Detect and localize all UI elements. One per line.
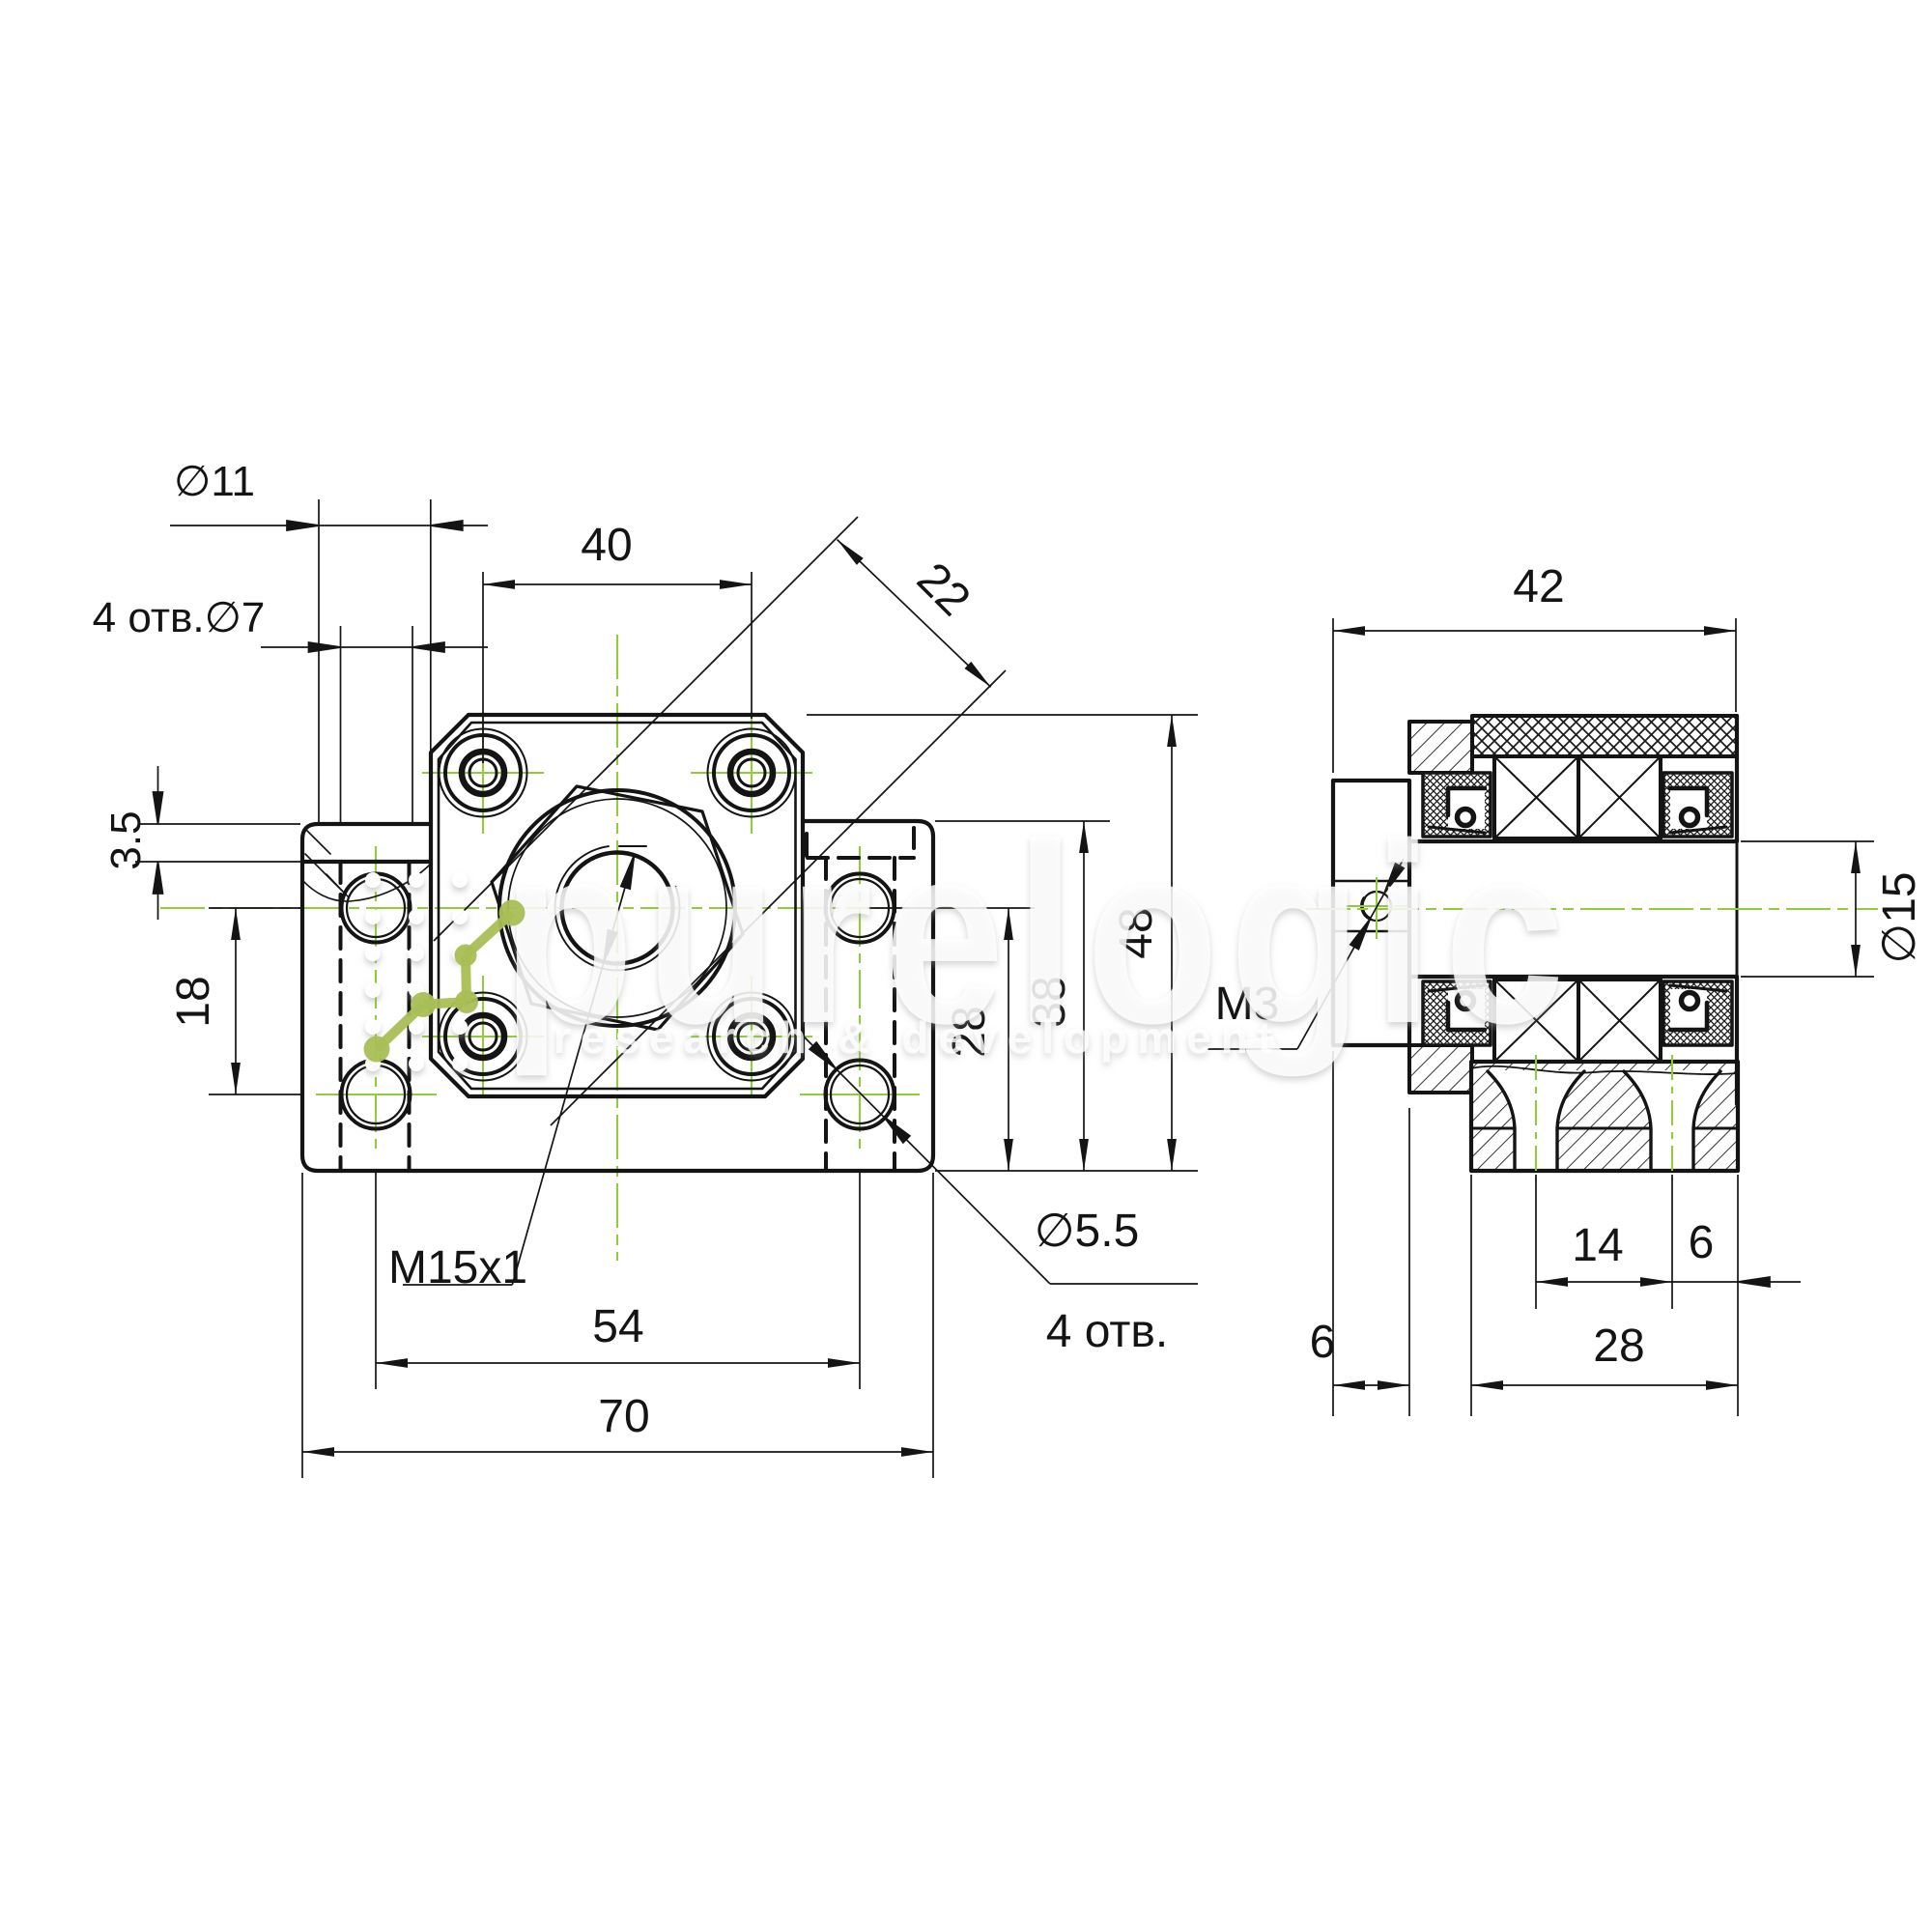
svg-text:40: 40 [581, 520, 632, 571]
svg-text:22: 22 [907, 554, 980, 626]
svg-text:70: 70 [598, 1391, 649, 1442]
svg-text:∅5.5: ∅5.5 [1035, 1206, 1140, 1257]
svg-text:42: 42 [1513, 561, 1564, 612]
svg-text:6: 6 [1310, 1317, 1336, 1368]
svg-text:research & development: research & development [554, 1012, 1282, 1063]
svg-text:6: 6 [1689, 1217, 1715, 1268]
svg-text:14: 14 [1572, 1220, 1623, 1271]
svg-text:4 отв.∅7: 4 отв.∅7 [93, 594, 266, 641]
svg-text:3.5: 3.5 [102, 810, 150, 869]
svg-text:M15x1: M15x1 [388, 1242, 527, 1293]
svg-text:∅11: ∅11 [174, 458, 255, 505]
svg-text:4 отв.: 4 отв. [1046, 1306, 1169, 1357]
svg-text:18: 18 [168, 976, 219, 1027]
svg-text:54: 54 [592, 1301, 643, 1352]
svg-text:28: 28 [1593, 1321, 1644, 1372]
svg-text:∅15: ∅15 [1874, 871, 1925, 963]
